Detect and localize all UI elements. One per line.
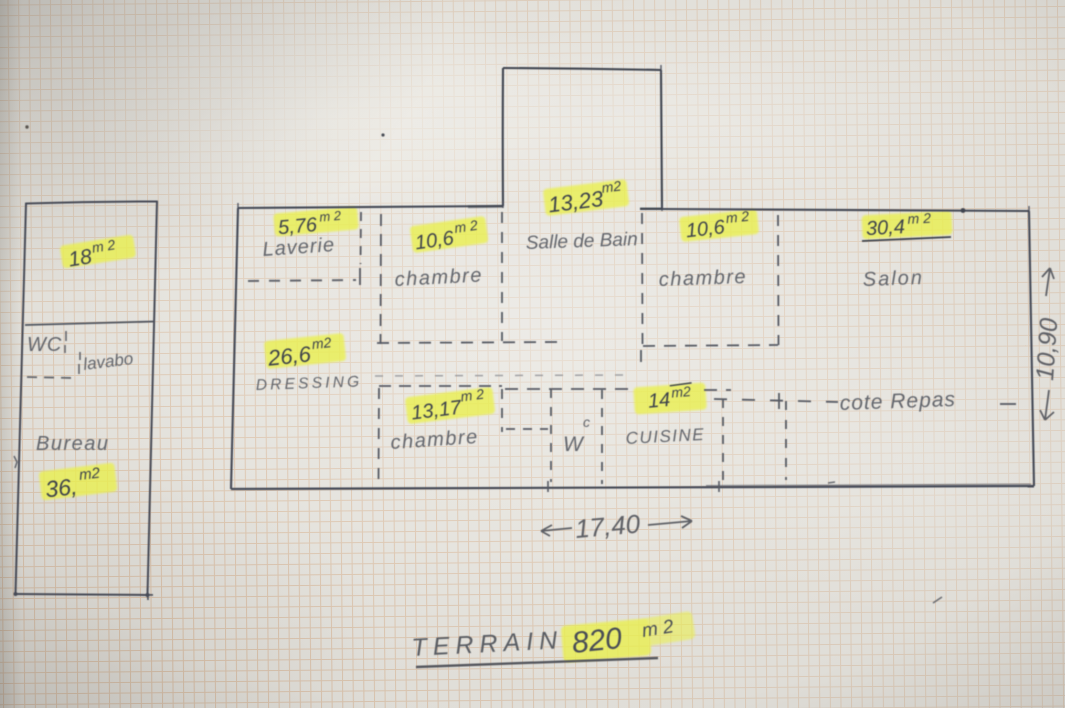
svg-text:WC: WC: [27, 334, 62, 356]
svg-text:m 2: m 2: [460, 386, 485, 405]
svg-text:17,40: 17,40: [574, 508, 642, 544]
svg-text:30,4: 30,4: [865, 216, 905, 240]
svg-text:m 2: m 2: [453, 217, 479, 236]
svg-text:18: 18: [67, 245, 94, 271]
svg-text:36,: 36,: [44, 473, 79, 502]
svg-text:m 2: m 2: [319, 208, 343, 225]
svg-text:chambre: chambre: [394, 264, 483, 291]
svg-text:m 2: m 2: [725, 208, 750, 226]
svg-text:10,90: 10,90: [1031, 317, 1063, 381]
svg-text:m 2: m 2: [907, 210, 931, 227]
svg-text:W: W: [563, 433, 585, 456]
svg-text:5,76: 5,76: [277, 214, 319, 239]
svg-text:Salon: Salon: [862, 267, 924, 291]
svg-text:chambre: chambre: [658, 266, 747, 291]
svg-text:cote Repas: cote Repas: [839, 388, 956, 415]
svg-text:Bureau: Bureau: [36, 433, 110, 455]
svg-text:10,6: 10,6: [685, 216, 727, 242]
svg-text:26,6: 26,6: [266, 341, 313, 371]
svg-text:m2: m2: [311, 334, 332, 352]
svg-text:m2: m2: [601, 178, 622, 196]
svg-text:820: 820: [570, 622, 624, 660]
svg-text:c: c: [583, 414, 590, 430]
svg-text:Salle de Bain: Salle de Bain: [525, 229, 638, 254]
svg-text:14: 14: [647, 389, 671, 413]
svg-text:m2: m2: [78, 465, 101, 484]
